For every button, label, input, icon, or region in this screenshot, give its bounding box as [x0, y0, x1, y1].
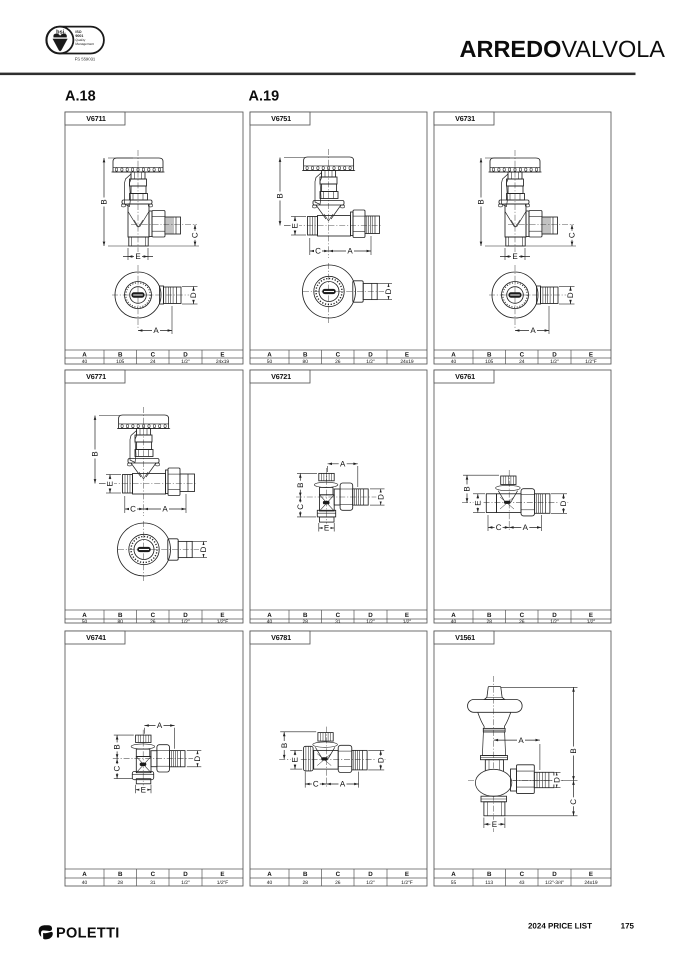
svg-text:A: A	[451, 612, 456, 619]
svg-text:A: A	[530, 326, 536, 335]
svg-text:26: 26	[335, 880, 341, 886]
svg-text:28: 28	[302, 880, 308, 886]
svg-text:1/2": 1/2"	[366, 880, 375, 886]
svg-text:D: D	[552, 612, 557, 619]
svg-text:C: C	[151, 871, 156, 878]
svg-text:V6741: V6741	[86, 633, 106, 642]
svg-text:D: D	[183, 612, 188, 619]
svg-text:E: E	[106, 481, 115, 486]
svg-text:A: A	[340, 460, 346, 469]
svg-text:D: D	[552, 352, 557, 359]
svg-text:A: A	[153, 326, 159, 335]
svg-text:A: A	[267, 612, 272, 619]
svg-text:V6761: V6761	[455, 372, 475, 381]
svg-text:C: C	[336, 871, 341, 878]
svg-text:D: D	[384, 288, 393, 294]
svg-text:B: B	[487, 352, 492, 359]
svg-text:31: 31	[335, 619, 341, 625]
svg-text:A: A	[267, 352, 272, 359]
svg-text:D: D	[566, 292, 575, 298]
svg-text:V6711: V6711	[86, 114, 106, 123]
svg-text:B: B	[463, 486, 472, 491]
svg-text:B: B	[118, 612, 123, 619]
svg-text:B: B	[487, 871, 492, 878]
svg-text:C: C	[520, 352, 525, 359]
svg-text:26: 26	[519, 619, 525, 625]
svg-text:A: A	[451, 871, 456, 878]
svg-text:D: D	[552, 871, 557, 878]
svg-text:40: 40	[267, 619, 273, 625]
svg-text:C: C	[520, 612, 525, 619]
svg-text:43: 43	[519, 880, 525, 886]
svg-text:1/2"F: 1/2"F	[217, 880, 229, 886]
svg-text:24x19: 24x19	[584, 880, 598, 886]
svg-text:D: D	[552, 777, 561, 783]
svg-text:E: E	[220, 871, 224, 878]
svg-text:1/2": 1/2"	[550, 359, 559, 365]
svg-text:A: A	[157, 721, 163, 730]
svg-text:40: 40	[267, 880, 273, 886]
svg-text:B: B	[118, 871, 123, 878]
svg-text:C: C	[336, 612, 341, 619]
svg-text:1/2": 1/2"	[550, 619, 559, 625]
svg-text:A.19: A.19	[249, 89, 280, 105]
svg-text:C: C	[151, 612, 156, 619]
svg-text:B: B	[118, 352, 123, 359]
svg-text:175: 175	[621, 922, 635, 931]
svg-text:C: C	[151, 352, 156, 359]
svg-text:E: E	[492, 820, 497, 829]
svg-text:D: D	[183, 352, 188, 359]
svg-text:Management: Management	[75, 42, 94, 46]
svg-text:28: 28	[117, 880, 123, 886]
svg-text:40: 40	[451, 619, 457, 625]
svg-text:1/2": 1/2"	[366, 619, 375, 625]
svg-text:D: D	[183, 871, 188, 878]
svg-text:V1561: V1561	[455, 633, 475, 642]
svg-text:V6781: V6781	[271, 633, 291, 642]
svg-text:E: E	[405, 352, 409, 359]
svg-text:A: A	[340, 780, 346, 789]
svg-text:A: A	[267, 871, 272, 878]
svg-text:V6721: V6721	[271, 372, 291, 381]
svg-text:1/2"-3/4": 1/2"-3/4"	[545, 880, 564, 886]
svg-text:A: A	[518, 736, 524, 745]
svg-text:40: 40	[82, 880, 88, 886]
svg-text:D: D	[376, 757, 385, 763]
svg-text:E: E	[135, 252, 140, 261]
svg-text:C: C	[496, 523, 502, 532]
svg-text:C: C	[569, 799, 578, 805]
svg-text:E: E	[589, 352, 593, 359]
svg-text:ARREDOVALVOLA: ARREDOVALVOLA	[460, 36, 666, 62]
svg-text:26: 26	[150, 619, 156, 625]
svg-text:E: E	[220, 612, 224, 619]
svg-text:D: D	[368, 612, 373, 619]
svg-text:9001: 9001	[75, 34, 83, 38]
svg-text:C: C	[313, 780, 319, 789]
svg-text:24x19: 24x19	[400, 359, 414, 365]
svg-text:E: E	[141, 785, 146, 794]
svg-text:C: C	[315, 247, 321, 256]
svg-text:POLETTI: POLETTI	[56, 926, 120, 942]
svg-text:A: A	[523, 523, 529, 532]
svg-text:80: 80	[117, 619, 123, 625]
svg-text:105: 105	[116, 359, 124, 365]
svg-text:C: C	[336, 352, 341, 359]
svg-text:E: E	[589, 871, 593, 878]
svg-text:1/2": 1/2"	[181, 880, 190, 886]
svg-text:B: B	[280, 743, 289, 748]
svg-text:E: E	[220, 352, 224, 359]
svg-text:C: C	[520, 871, 525, 878]
svg-text:40: 40	[82, 359, 88, 365]
svg-text:D: D	[199, 546, 208, 552]
svg-text:A: A	[82, 612, 87, 619]
svg-text:26: 26	[335, 359, 341, 365]
svg-text:V6751: V6751	[271, 114, 291, 123]
svg-text:B: B	[91, 451, 100, 456]
svg-text:E: E	[512, 252, 517, 261]
svg-text:B: B	[113, 744, 122, 749]
svg-text:A.18: A.18	[65, 89, 96, 105]
svg-text:C: C	[130, 505, 136, 514]
svg-text:B: B	[487, 612, 492, 619]
svg-text:A: A	[347, 247, 353, 256]
svg-text:24: 24	[150, 359, 156, 365]
svg-text:E: E	[291, 757, 300, 762]
svg-text:B: B	[303, 352, 308, 359]
svg-text:1/2": 1/2"	[366, 359, 375, 365]
svg-text:C: C	[568, 232, 577, 238]
svg-text:28: 28	[486, 619, 492, 625]
svg-text:A: A	[162, 505, 168, 514]
svg-text:1/2"F: 1/2"F	[401, 880, 413, 886]
svg-text:FS 559031: FS 559031	[75, 56, 96, 61]
svg-text:B: B	[276, 193, 285, 198]
svg-text:D: D	[376, 494, 385, 500]
svg-text:B: B	[303, 871, 308, 878]
svg-text:E: E	[291, 223, 300, 228]
svg-text:C: C	[191, 232, 200, 238]
svg-text:50: 50	[267, 359, 273, 365]
svg-text:24: 24	[519, 359, 525, 365]
svg-text:1/2": 1/2"	[181, 619, 190, 625]
svg-text:A: A	[82, 352, 87, 359]
svg-text:B: B	[303, 612, 308, 619]
svg-text:24x19: 24x19	[216, 359, 230, 365]
svg-text:28: 28	[302, 619, 308, 625]
svg-text:D: D	[193, 756, 202, 762]
svg-text:55: 55	[451, 880, 457, 886]
svg-text:D: D	[559, 500, 568, 506]
svg-text:50: 50	[82, 619, 88, 625]
svg-text:1/2": 1/2"	[403, 619, 412, 625]
svg-text:B: B	[296, 483, 305, 488]
svg-text:D: D	[368, 352, 373, 359]
svg-text:1/2": 1/2"	[181, 359, 190, 365]
svg-text:V6731: V6731	[455, 114, 475, 123]
svg-text:105: 105	[485, 359, 493, 365]
svg-text:1/2"F: 1/2"F	[585, 359, 597, 365]
svg-text:1/2": 1/2"	[587, 619, 596, 625]
svg-text:113: 113	[485, 880, 493, 886]
svg-text:B: B	[477, 199, 486, 204]
svg-text:C: C	[113, 765, 122, 771]
svg-text:D: D	[368, 871, 373, 878]
svg-text:E: E	[405, 612, 409, 619]
svg-text:E: E	[473, 500, 482, 505]
svg-text:80: 80	[302, 359, 308, 365]
svg-text:31: 31	[150, 880, 156, 886]
svg-text:V6771: V6771	[86, 372, 106, 381]
svg-text:A: A	[451, 352, 456, 359]
svg-text:D: D	[189, 292, 198, 298]
svg-text:B: B	[100, 199, 109, 204]
svg-text:A: A	[82, 871, 87, 878]
svg-text:E: E	[589, 612, 593, 619]
svg-text:E: E	[405, 871, 409, 878]
svg-text:E: E	[324, 524, 329, 533]
svg-text:2024 PRICE LIST: 2024 PRICE LIST	[528, 922, 592, 931]
svg-text:B: B	[569, 748, 578, 753]
svg-text:40: 40	[451, 359, 457, 365]
svg-text:C: C	[296, 504, 305, 510]
svg-text:1/2"F: 1/2"F	[217, 619, 229, 625]
